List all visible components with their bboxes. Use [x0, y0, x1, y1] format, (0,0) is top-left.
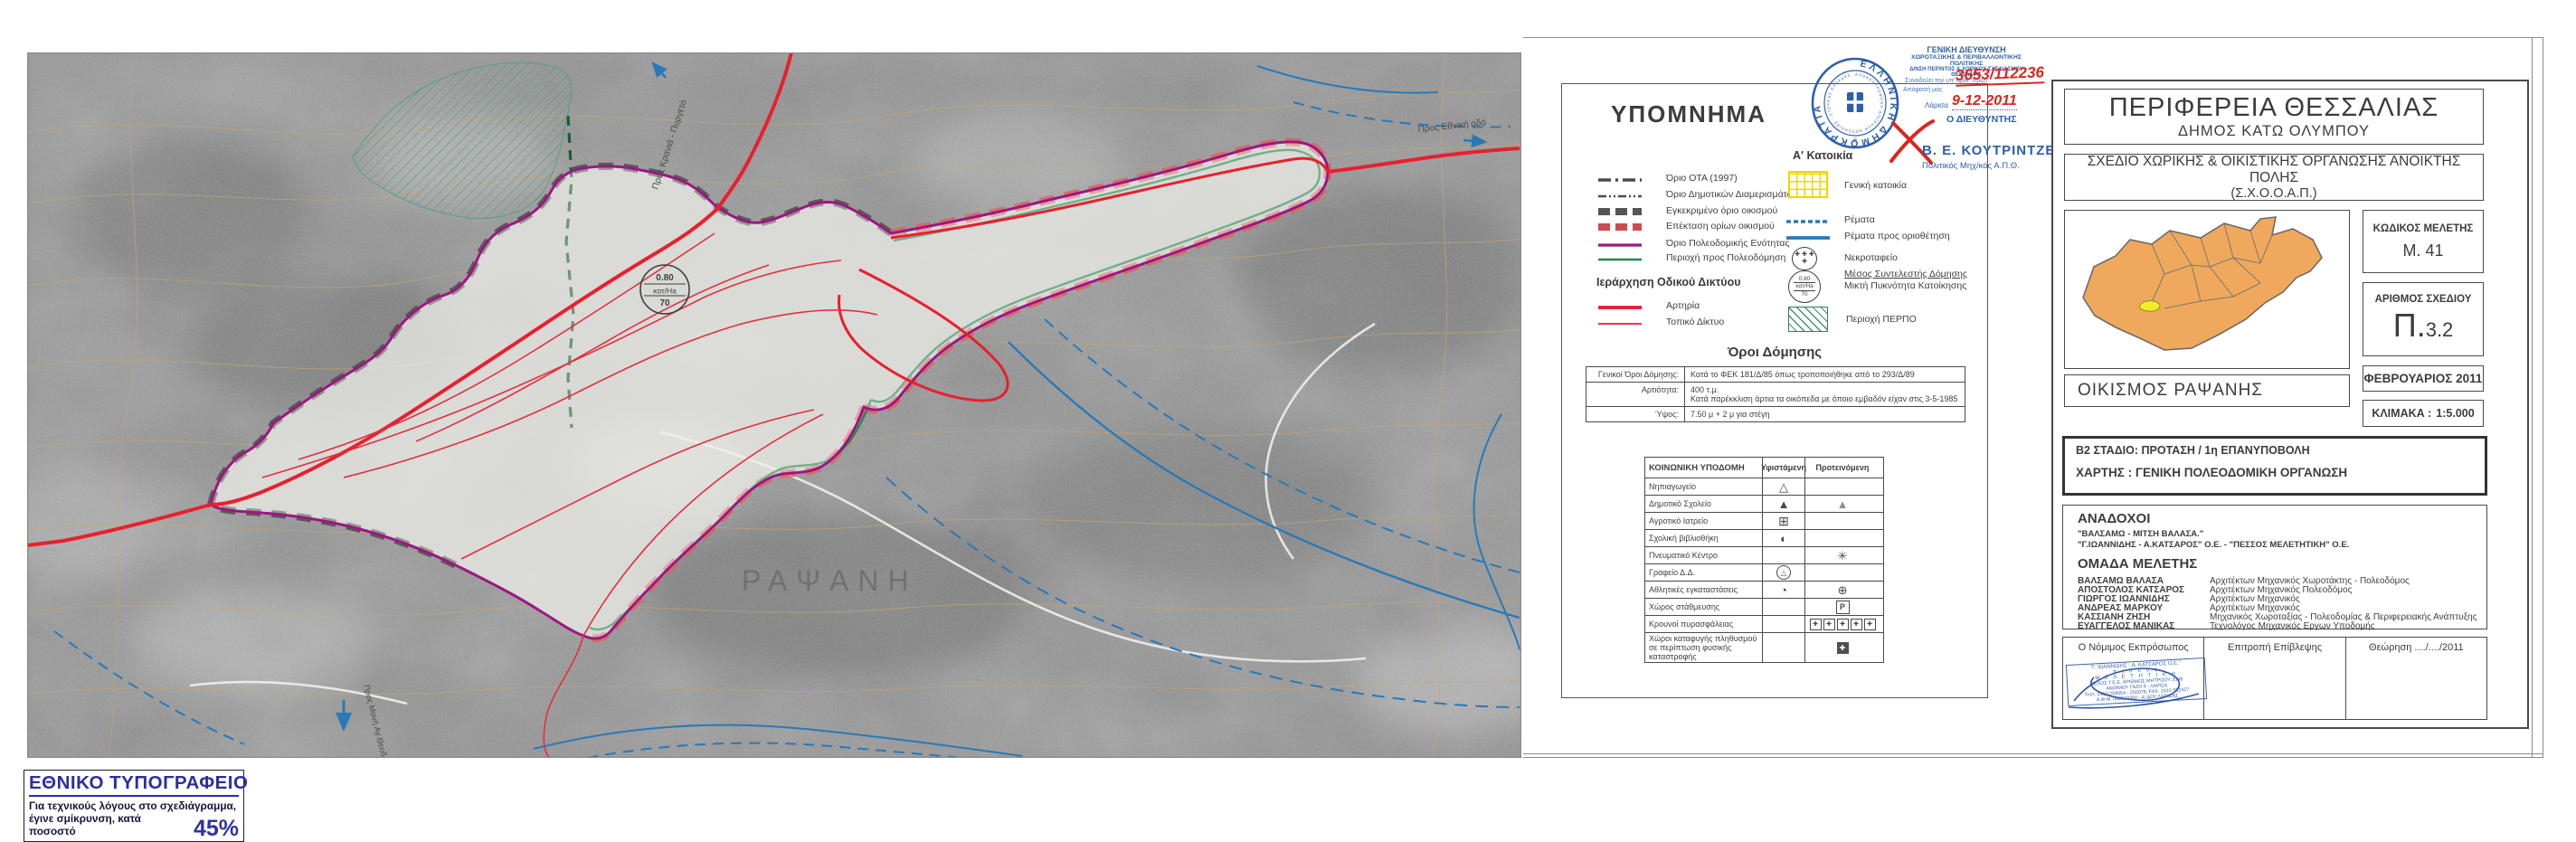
- stamp-city: Λάρισα: [1925, 101, 1948, 109]
- school-library-icon: ◐: [1780, 533, 1787, 544]
- fire-hydrant-icon: ✚: [1823, 619, 1835, 630]
- title-block: ΠΕΡΙΦΕΡΕΙΑ ΘΕΣΣΑΛΙΑΣ ΔΗΜΟΣ ΚΑΤΩ ΟΛΥΜΠΟΥ …: [2051, 80, 2529, 729]
- streams-delimit-swatch: [1786, 234, 1830, 241]
- sheet-right-line: [2532, 37, 2533, 757]
- plan-sheet: 0.80 κατ/Ha 70 ΡΑΨΑΝΗ Προς Κρανιά - Πυργ…: [0, 0, 2576, 842]
- general-housing-swatch: [1788, 171, 1828, 198]
- municipality-title: ΔΗΜΟΣ ΚΑΤΩ ΟΛΥΜΠΟΥ: [2178, 123, 2370, 140]
- stage-box: Β2 ΣΤΑΔΙΟ: ΠΡΟΤΑΣΗ / 1η ΕΠΑΝΥΠΟΒΟΛΗ ΧΑΡΤ…: [2062, 436, 2487, 496]
- approval-label: Θεώρηση ..../..../2011: [2346, 642, 2486, 653]
- stamp-dept-line: ΓΕΝΙΚΗ ΔΙΕΥΘΥΝΣΗ: [1905, 45, 2028, 54]
- sheet-bottom-line: [1523, 753, 2543, 754]
- housing-header: Α' Κατοικία: [1793, 149, 1852, 162]
- stamp-date: 9-12-2011: [1952, 93, 2017, 110]
- district-office-icon: △: [1776, 565, 1791, 580]
- perpo-swatch: [1788, 307, 1828, 332]
- legend-item-label: Αρτηρία: [1666, 300, 1700, 311]
- legend-panel: ΥΠΟΜΝΗΜΑ Όριο ΟΤΑ (1997) Όριο Δημοτικών …: [1561, 83, 1988, 698]
- printing-house-line: Για τεχνικούς λόγους στο σχεδιάγραμμα,: [29, 799, 239, 812]
- stamp-director-label: Ο ΔΙΕΥΘΥΝΤΗΣ: [1946, 114, 2017, 125]
- table-row: Πνευματικό Κέντρο ✳: [1645, 546, 1883, 563]
- roads-header: Ιεράρχηση Οδικού Δικτύου: [1596, 276, 1741, 289]
- sheet-number-prefix: Π.: [2393, 307, 2426, 345]
- table-row: Κρουνοί πυρασφάλειας ✚ ✚ ✚ ✚ ✚: [1645, 615, 1883, 632]
- primary-school-proposed-icon: ▲: [1837, 498, 1849, 510]
- fire-hydrant-icon: ✚: [1864, 619, 1876, 630]
- team-header: ΟΜΑΔΑ ΜΕΛΕΤΗΣ: [2078, 556, 2197, 572]
- extension-limit-swatch: [1598, 222, 1642, 232]
- contractors-box: ΑΝΑΔΟΧΟΙ "ΒΑΛΣΑΜΩ - ΜΙΤΣΗ ΒΑΛΑΣΑ." "Γ.ΙΩ…: [2062, 505, 2487, 629]
- legend-item-label: Ρέματα προς οριοθέτηση: [1844, 231, 1950, 241]
- legend-item-label: Εγκεκριμένο όριο οικισμού: [1666, 205, 1777, 216]
- sheet-number-value: 3.2: [2426, 318, 2454, 342]
- sports-facilities-icon: ◔: [1780, 584, 1787, 596]
- district-boundary-swatch: [1598, 193, 1642, 200]
- signature-x-mark: [1886, 116, 1937, 166]
- rapsani-highlight: [2139, 301, 2160, 312]
- scale-box: ΚΛΙΜΑΚΑ : 1:5.000: [2363, 400, 2484, 427]
- legend-item-label: Νεκροταφείο: [1844, 252, 1898, 263]
- contractors-header: ΑΝΑΔΟΧΟΙ: [2078, 511, 2150, 526]
- to-plan-swatch: [1598, 256, 1642, 263]
- table-row: Αγροτικό Ιατρείο ⊞: [1645, 512, 1883, 529]
- stage-line: Β2 ΣΤΑΔΙΟ: ΠΡΟΤΑΣΗ / 1η ΕΠΑΝΥΠΟΒΟΛΗ: [2076, 444, 2474, 457]
- settlement-box: ΟΙΚΙΣΜΟΣ ΡΑΨΑΝΗΣ: [2064, 374, 2350, 407]
- legend-item-label: Τοπικό Δίκτυο: [1666, 317, 1724, 327]
- legal-rep-label: Ο Νόμιμος Εκπρόσωπος: [2063, 642, 2203, 653]
- refuge-area-icon: ✚: [1837, 642, 1849, 654]
- legend-item-label: Όριο Πολεοδομικής Ενότητας: [1666, 238, 1789, 249]
- study-code-box: ΚΩΔΙΚΟΣ ΜΕΛΕΤΗΣ Μ. 41: [2363, 210, 2484, 273]
- density-coefficient-icon: 0.80 κατ/Ha 70: [1788, 270, 1821, 303]
- table-row: Σχολική βιβλιοθήκη ◐: [1645, 529, 1883, 546]
- printing-house-title: ΕΘΝΙΚΟ ΤΥΠΟΓΡΑΦΕΙΟ: [29, 772, 239, 797]
- parking-icon: P: [1836, 601, 1850, 614]
- streams-swatch: [1786, 218, 1830, 225]
- sports-facilities-proposed-icon: ⊕: [1838, 584, 1848, 596]
- legend-item-label: Επέκταση ορίων οικισμού: [1666, 221, 1775, 232]
- legend-item-label: Όριο Δημοτικών Διαμερισμάτων: [1666, 189, 1799, 200]
- table-row: Αρτιότητα: 400 τ.μ.Κατά παρέκκλιση άρτια…: [1586, 382, 1965, 406]
- stamp-signer-title: Πολιτικός Μηχ/κός Α.Π.Θ.: [1922, 161, 2020, 171]
- printing-house-box: ΕΘΝΙΚΟ ΤΥΠΟΓΡΑΦΕΙΟ Για τεχνικούς λόγους …: [24, 770, 244, 842]
- aerial-map: 0.80 κατ/Ha 70 ΡΑΨΑΝΗ Προς Κρανιά - Πυργ…: [27, 52, 1521, 758]
- svg-text:0.80: 0.80: [656, 273, 674, 283]
- municipality-inset-box: [2064, 210, 2350, 369]
- table-row: Χώροι καταφυγής πληθυσμού σε περίπτωση φ…: [1645, 632, 1883, 662]
- contractor-line: "Γ.ΙΩΑΝΝΙΔΗΣ - Α.ΚΑΤΣΑΡΟΣ" Ο.Ε. - "ΠΕΣΣΟ…: [2078, 540, 2349, 550]
- study-code-label: ΚΩΔΙΚΟΣ ΜΕΛΕΤΗΣ: [2373, 223, 2474, 234]
- date-value: ΦΕΒΡΟΥΑΡΙΟΣ 2011: [2364, 372, 2483, 385]
- municipality-inset-map: [2065, 211, 2347, 366]
- primary-school-icon: ▲: [1778, 498, 1790, 510]
- legend-item-label: Όριο ΟΤΑ (1997): [1666, 173, 1738, 184]
- sheet-number-box: ΑΡΙΘΜΟΣ ΣΧΕΔΙΟΥ Π. 3.2: [2363, 282, 2484, 356]
- svg-text:κατ/Ha: κατ/Ha: [653, 287, 677, 296]
- social-infrastructure-table: ΚΟΙΝΩΝΙΚΗ ΥΠΟΔΟΜΗ Υφιστάμενη Προτεινόμεν…: [1644, 457, 1884, 663]
- stamp-note: Απόφασή μας: [1903, 87, 1943, 93]
- legend-item-label: Μέσος Συντελεστής Δόμησης: [1844, 269, 1967, 279]
- settlement-name: ΟΙΚΙΣΜΟΣ ΡΑΨΑΝΗΣ: [2065, 381, 2263, 401]
- signature-swirl: [2063, 658, 2203, 717]
- stamp-protocol-number: 3653/112236: [1956, 63, 2045, 86]
- team-member-name: ΕΥΑΓΓΕΛΟΣ ΜΑΝΙΚΑΣ: [2078, 621, 2174, 631]
- sheet-right-line-2: [2543, 37, 2543, 757]
- legend-item-label: Περιοχή προς Πολεοδόμηση: [1666, 252, 1785, 263]
- committee-label: Επιτροπή Επίβλεψης: [2204, 642, 2344, 653]
- plan-type-abbr: (Σ.Χ.Ο.Ο.Α.Π.): [2230, 186, 2316, 201]
- legal-rep-cell: Ο Νόμιμος Εκπρόσωπος "Γ. ΙΩΑΝΝΙΔΗΣ - Α. …: [2063, 638, 2204, 719]
- approval-cell: Θεώρηση ..../..../2011: [2346, 638, 2486, 719]
- fire-hydrant-icon: ✚: [1810, 619, 1822, 630]
- svg-text:70: 70: [659, 298, 670, 308]
- building-terms-table: Γενικοί Όροι Δόμησης: Κατά το ΦΕΚ 181/Δ/…: [1586, 366, 1965, 422]
- place-label: ΡΑΨΑΝΗ: [742, 564, 918, 597]
- printing-house-line: έγινε σμίκρυνση, κατά ποσοστό: [29, 812, 188, 837]
- approved-limit-swatch: [1598, 207, 1642, 216]
- region-title: ΠΕΡΙΦΕΡΕΙΑ ΘΕΣΣΑΛΙΑΣ: [2109, 93, 2439, 123]
- legend-item-label: Γενική κατοικία: [1844, 180, 1907, 191]
- table-row: Δημοτικό Σχολείο ▲ ▲: [1645, 495, 1883, 512]
- study-code-value: Μ. 41: [2402, 241, 2443, 260]
- table-row: Αθλητικές εγκαταστάσεις ◔ ⊕: [1645, 581, 1883, 598]
- stamp-signer-name: Β. Ε. ΚΟΥΤΡΙΝΤΖΕΣ: [1922, 143, 2064, 158]
- fire-hydrant-icon: ✚: [1851, 619, 1862, 630]
- cemetery-icon: ✚ ✚ ✚ ✚: [1792, 247, 1817, 270]
- sheet-number-label: ΑΡΙΘΜΟΣ ΣΧΕΔΙΟΥ: [2375, 294, 2472, 305]
- plan-type: ΣΧΕΔΙΟ ΧΩΡΙΚΗΣ & ΟΙΚΙΣΤΙΚΗΣ ΟΡΓΑΝΩΣΗΣ ΑΝ…: [2065, 154, 2483, 186]
- planning-unit-swatch: [1598, 241, 1642, 249]
- scale-label: ΚΛΙΜΑΚΑ :: [2372, 407, 2431, 420]
- contractor-line: "ΒΑΛΣΑΜΩ - ΜΙΤΣΗ ΒΑΛΑΣΑ.": [2078, 529, 2203, 539]
- sheet-top-line: [1523, 37, 2543, 38]
- date-box: ΦΕΒΡΟΥΑΡΙΟΣ 2011: [2363, 365, 2484, 392]
- region-box: ΠΕΡΙΦΕΡΕΙΑ ΘΕΣΣΑΛΙΑΣ ΔΗΜΟΣ ΚΑΤΩ ΟΛΥΜΠΟΥ: [2064, 89, 2484, 145]
- reduction-percent: 45%: [194, 819, 239, 837]
- legend-item-label: Μικτή Πυκνότητα Κατοίκησης: [1844, 280, 1966, 291]
- legend-title: ΥΠΟΜΝΗΜΑ: [1580, 100, 1797, 128]
- kindergarten-icon: △: [1779, 481, 1788, 493]
- map-title-line: ΧΑΡΤΗΣ : ΓΕΝΙΚΗ ΠΟΛΕΟΔΟΜΙΚΗ ΟΡΓΑΝΩΣΗ: [2076, 466, 2474, 479]
- fire-hydrant-icon: ✚: [1837, 619, 1849, 630]
- artery-swatch: [1598, 304, 1642, 311]
- table-row: Γραφείο Δ.Δ. △: [1645, 563, 1883, 581]
- scale-value: 1:5.000: [2436, 407, 2474, 420]
- rural-clinic-icon: ⊞: [1778, 516, 1789, 527]
- local-network-swatch: [1598, 320, 1642, 327]
- legend-item-label: Περιοχή ΠΕΡΠΟ: [1846, 314, 1917, 325]
- cultural-center-icon: ✳: [1838, 550, 1848, 562]
- table-row: Γενικοί Όροι Δόμησης: Κατά το ΦΕΚ 181/Δ/…: [1586, 367, 1965, 382]
- plan-type-box: ΣΧΕΔΙΟ ΧΩΡΙΚΗΣ & ΟΙΚΙΣΤΙΚΗΣ ΟΡΓΑΝΩΣΗΣ ΑΝ…: [2064, 154, 2484, 201]
- ota-boundary-swatch: [1598, 176, 1642, 184]
- sheet-bottom-line-2: [1523, 757, 2543, 758]
- table-row: Νηπιαγωγείο △: [1645, 478, 1883, 495]
- signature-table: Ο Νόμιμος Εκπρόσωπος "Γ. ΙΩΑΝΝΙΔΗΣ - Α. …: [2062, 637, 2487, 720]
- table-row: Χώρος στάθμευσης P: [1645, 598, 1883, 615]
- table-row: Ύψος: 7.50 μ + 2 μ για στέγη: [1586, 406, 1965, 421]
- table-header-row: ΚΟΙΝΩΝΙΚΗ ΥΠΟΔΟΜΗ Υφιστάμενη Προτεινόμεν…: [1645, 458, 1883, 478]
- legend-item-label: Ρέματα: [1844, 214, 1875, 225]
- building-terms-title: Όροι Δόμησης: [1586, 345, 1964, 360]
- committee-cell: Επιτροπή Επίβλεψης: [2204, 638, 2345, 719]
- team-member-role: Τεχνολόγος Μηχανικός Εργων Υποδομής: [2210, 621, 2375, 631]
- svg-text:✳: ✳: [1852, 137, 1859, 145]
